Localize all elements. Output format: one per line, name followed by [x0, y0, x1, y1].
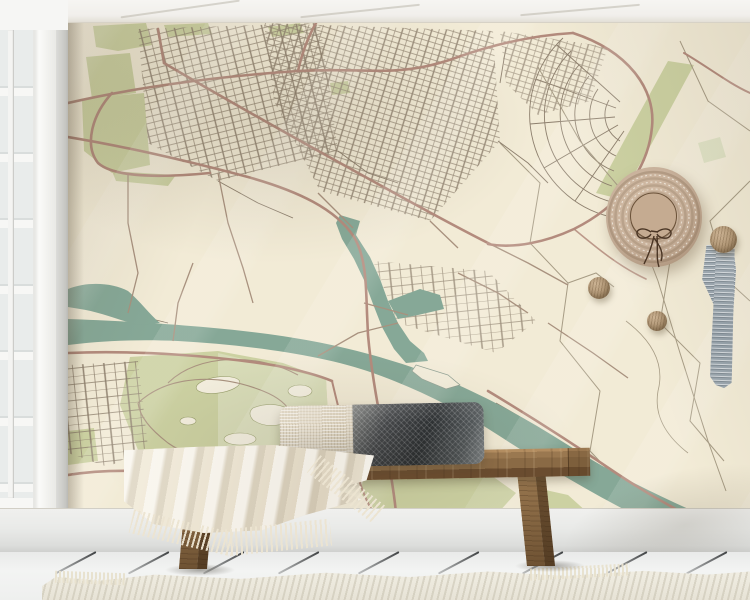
window-top-rail — [0, 0, 68, 30]
window — [0, 0, 68, 508]
interior-mockup-photo — [0, 0, 750, 600]
straw-hat — [604, 166, 705, 270]
floor-plank-seam — [358, 551, 400, 574]
floor-plank-seam — [128, 551, 170, 574]
window-pane-column — [0, 30, 8, 498]
window-pane-column — [14, 30, 33, 498]
ceiling-seam — [121, 0, 240, 18]
ceiling-seam — [300, 4, 420, 19]
window-frame-stile — [33, 0, 56, 508]
floor-plank-seam — [438, 551, 480, 574]
rug-fringe — [55, 571, 125, 585]
floor-plank-seam — [686, 551, 728, 574]
wall-knob — [710, 226, 737, 253]
ceiling-seam — [520, 4, 640, 16]
bench-end-cap — [568, 448, 591, 476]
ceiling — [0, 0, 750, 23]
wall-knob — [647, 311, 667, 331]
wall-knob — [588, 277, 610, 299]
window-jamb — [56, 0, 68, 508]
floor-plank-seam — [278, 551, 320, 574]
